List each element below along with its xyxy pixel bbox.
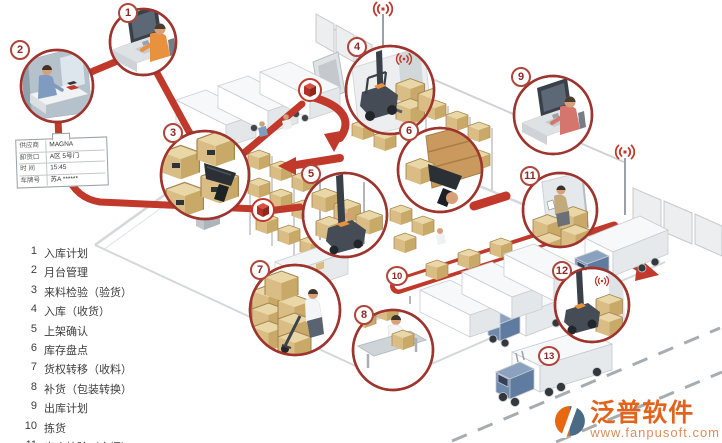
watermark-url: www.fanpusoft.com <box>590 426 720 440</box>
step-circle-7 <box>250 265 340 361</box>
step-badge-5: 5 <box>301 164 321 184</box>
step-circle-9 <box>514 76 592 154</box>
legend: 1入库计划 2月台管理 3来料检验（验货） 4入库（收货） 5上架确认 6库存盘… <box>20 245 132 443</box>
warehouse-process-diagram: 1 2 3 4 5 6 7 8 9 10 11 12 13 供应商MAGNA 卸… <box>0 0 722 443</box>
step-circle-3 <box>161 131 249 219</box>
legend-item: 8补货（包装转换） <box>20 381 132 397</box>
legend-item: 10拣货 <box>20 420 132 436</box>
legend-item: 2月台管理 <box>20 264 132 280</box>
watermark: 泛普软件 www.fanpusoft.com <box>553 401 720 440</box>
conveyor-worker <box>437 228 443 234</box>
step-badge-4: 4 <box>347 37 367 57</box>
step-badge-9: 9 <box>511 67 531 87</box>
rf-signal-icon <box>616 146 635 159</box>
legend-item: 4入库（收货） <box>20 303 132 319</box>
dock-ticket: 供应商MAGNA 卸货口A区 5号门 时 间15:45 车牌号苏A ****** <box>15 136 109 188</box>
legend-item: 6库存盘点 <box>20 342 132 358</box>
antenna-pole-right <box>616 146 635 216</box>
watermark-brand: 泛普软件 <box>590 401 720 426</box>
legend-item: 11出库校验（合捆） <box>20 439 132 443</box>
conveyor-crate <box>426 260 448 280</box>
dock-office <box>22 45 92 120</box>
step-badge-10: 10 <box>386 266 408 286</box>
legend-item: 9出库计划 <box>20 400 132 416</box>
step-circle-2 <box>21 45 93 122</box>
rf-signal-icon <box>374 3 393 16</box>
step-badge-12: 12 <box>552 261 572 281</box>
package-icon <box>252 199 274 221</box>
ticket-row: 车牌号苏A ****** <box>19 173 105 186</box>
legend-item: 1入库计划 <box>20 245 132 261</box>
step-badge-6: 6 <box>399 121 419 141</box>
package-icon <box>299 79 321 101</box>
step-badge-11: 11 <box>520 166 540 186</box>
fanpu-logo-icon <box>553 404 587 438</box>
step-circle-4 <box>346 46 447 138</box>
step-badge-8: 8 <box>354 305 374 325</box>
legend-item: 7货权转移（收料） <box>20 361 132 377</box>
step-badge-7: 7 <box>250 260 270 280</box>
legend-item: 3来料检验（验货） <box>20 284 132 300</box>
legend-item: 5上架确认 <box>20 323 132 339</box>
step-circle-5 <box>303 172 387 257</box>
step-badge-3: 3 <box>163 123 183 143</box>
step-badge-13: 13 <box>538 346 560 366</box>
step-badge-2: 2 <box>10 40 30 60</box>
step-badge-1: 1 <box>118 3 138 23</box>
